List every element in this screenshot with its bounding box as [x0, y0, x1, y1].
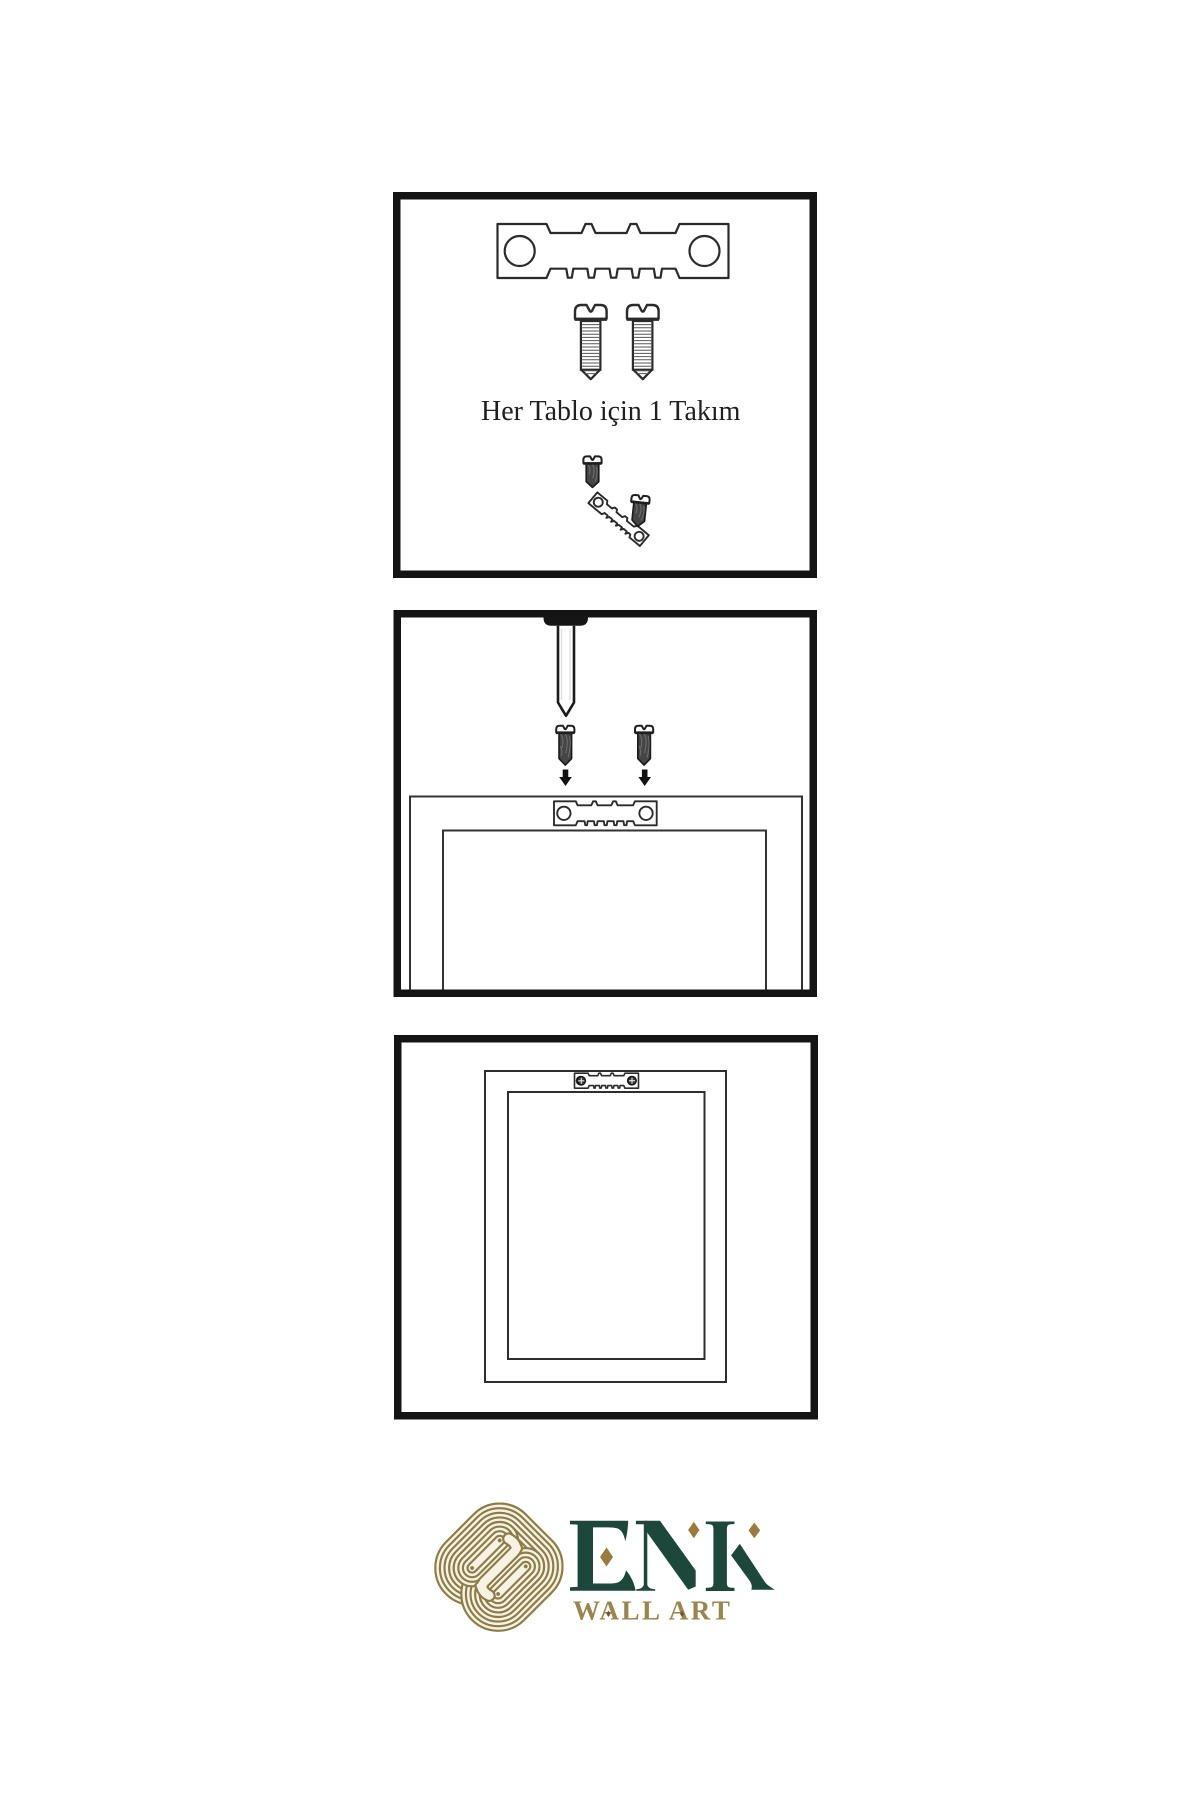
svg-text:Her Tablo için 1 Takım: Her Tablo için 1 Takım	[481, 396, 741, 427]
svg-text:WALL ART: WALL ART	[573, 1595, 732, 1625]
